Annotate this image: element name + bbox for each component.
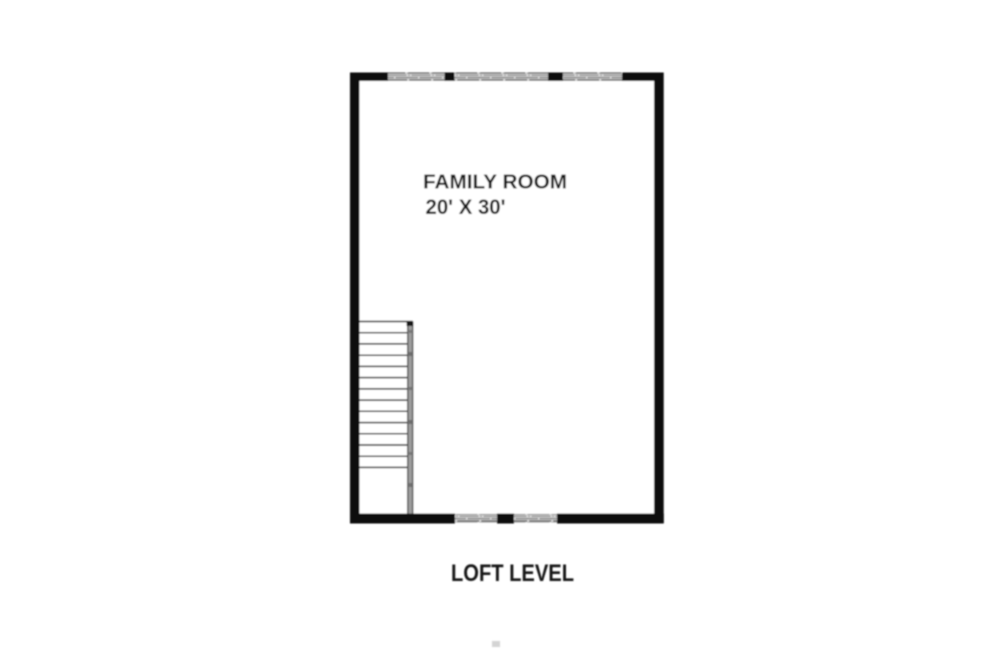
svg-text:FAMILY ROOM: FAMILY ROOM — [423, 171, 567, 194]
svg-text:LOFT LEVEL: LOFT LEVEL — [451, 560, 574, 587]
svg-text:20' X 30': 20' X 30' — [426, 195, 506, 219]
